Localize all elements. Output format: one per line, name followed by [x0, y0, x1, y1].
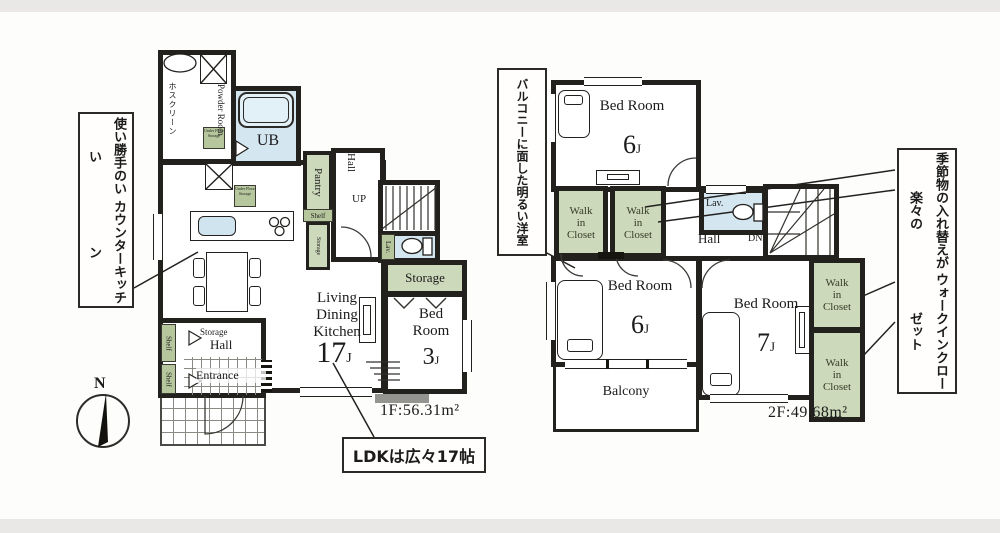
entrance-label: Entrance	[196, 368, 266, 383]
window	[710, 394, 788, 403]
hall-2f-label: Hall	[698, 231, 738, 247]
ub-label: UB	[248, 130, 288, 152]
floorplan-image: Shelf Storage Shelf Shelf Under Floor St…	[0, 0, 1000, 533]
bedroom6a-label: Bed Room	[592, 98, 672, 115]
kitchen-sink	[198, 216, 236, 236]
window	[546, 282, 556, 340]
hall-upper-label: Hall	[341, 153, 357, 195]
window	[153, 214, 163, 260]
desk	[596, 170, 640, 185]
bathtub-inner	[243, 97, 289, 123]
bedroom3-size: 3J	[400, 344, 462, 371]
bedroom7-label: Bed Room	[728, 296, 804, 313]
compass	[76, 394, 130, 448]
bed	[558, 90, 590, 138]
dining-table	[206, 252, 248, 312]
room-stairs-1f	[378, 180, 440, 236]
pantry-shelf-label: Shelf	[303, 209, 333, 222]
pillow	[710, 373, 732, 386]
storage-room-label: Storage	[385, 263, 465, 293]
dn-label: DN	[748, 233, 774, 244]
room-lav-2f	[699, 188, 767, 235]
small-storage-label: Storage	[308, 226, 328, 266]
window	[706, 185, 746, 194]
entry-storage-label: Storage	[200, 327, 260, 337]
callout-ldk-text: LDKは広々17帖	[353, 443, 475, 467]
under-floor-chip-kitchen: Under Floor Storage	[234, 185, 256, 207]
area-2f-label: 2F:49.68m²	[768, 404, 888, 422]
entry-shelf-a: Shelf	[161, 324, 176, 362]
up-label: UP	[352, 193, 378, 207]
porch	[160, 396, 266, 446]
bottom-band	[0, 519, 1000, 533]
callout-balcony-room: バルコニーに面した 明るい洋室	[497, 68, 547, 256]
powder-room-label: Powder Room	[202, 84, 226, 162]
bedroom6b-label: Bed Room	[600, 278, 680, 295]
bedroom7-size: 7J	[738, 328, 794, 358]
balcony-label: Balcony	[588, 382, 664, 402]
callout-wic-text: 季節物の入れ替えが楽々の ウォークインクローゼット	[899, 150, 955, 392]
callout-kitchen-text: 使い勝手のいい カウンターキッチン	[80, 114, 132, 306]
wic1-label: WalkinCloset	[558, 192, 604, 254]
dining-chair	[193, 258, 205, 278]
desk-inner	[607, 174, 629, 180]
dining-chair	[193, 286, 205, 306]
compass-n-label: N	[94, 375, 106, 393]
ldk-label: Living Dining Kitchen	[292, 290, 382, 341]
pillow	[567, 339, 593, 352]
wic4-label: WalkinCloset	[813, 342, 861, 408]
wic3-label: WalkinCloset	[813, 264, 861, 326]
closet-door-inner	[799, 312, 805, 348]
top-band	[0, 0, 1000, 12]
room-stairs-2f	[763, 184, 839, 260]
washer-pan-kitchen	[205, 163, 233, 190]
pantry-label: Pantry	[305, 156, 331, 208]
callout-wic: 季節物の入れ替えが楽々の ウォークインクローゼット	[897, 148, 957, 394]
callout-ldk: LDKは広々17帖	[342, 437, 486, 473]
lav-label-chip-1f: Lav.	[381, 234, 395, 260]
bed	[557, 280, 603, 360]
window	[546, 94, 556, 142]
bathtub	[238, 92, 294, 128]
bedroom6b-size: 6J	[612, 310, 668, 340]
wic2-label: WalkinCloset	[614, 192, 662, 254]
ldk-size: 17J	[298, 336, 370, 370]
washer-pan-powder	[200, 54, 227, 84]
sliding-window	[565, 359, 687, 369]
hoscreen-label: ホスクリーン	[164, 82, 178, 160]
window	[300, 387, 372, 397]
dining-chair	[249, 258, 261, 278]
pillow	[564, 95, 583, 105]
lav-2f-label: Lav.	[706, 198, 736, 209]
area-1f-label: 1F:56.31m²	[380, 402, 495, 420]
window	[584, 77, 642, 86]
callout-kitchen: 使い勝手のいい カウンターキッチン	[78, 112, 134, 308]
bed	[702, 312, 740, 396]
bedroom6a-size: 6J	[604, 130, 660, 160]
closet-door-panel	[795, 306, 810, 354]
callout-balcony-text: バルコニーに面した 明るい洋室	[499, 70, 545, 254]
dining-chair	[249, 286, 261, 306]
entry-shelf-b: Shelf	[161, 364, 176, 394]
entry-hall-label: Hall	[210, 337, 270, 353]
bedroom3-label: Bed Room	[392, 306, 470, 340]
